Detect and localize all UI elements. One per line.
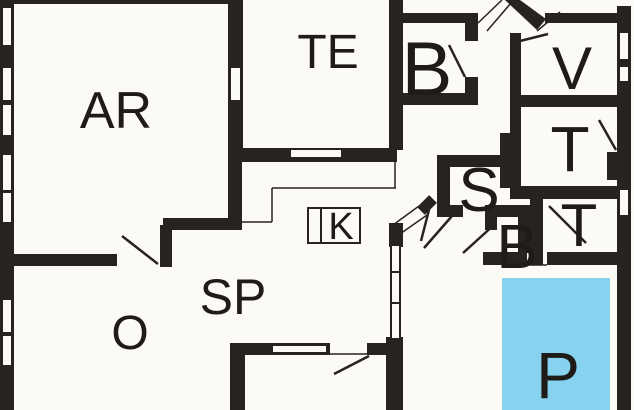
windows — [272, 245, 400, 353]
room-label-t-upper: T — [550, 113, 589, 185]
room-label-sp: SP — [200, 269, 267, 325]
door-swing-t-upper — [599, 120, 616, 150]
floor-plan: AR TE B V T S B T K SP O P — [0, 0, 634, 410]
door-swing-s — [424, 216, 452, 248]
room-label-b-top: B — [402, 27, 453, 112]
window-sp-hall — [391, 245, 400, 339]
floor-plan-canvas: AR TE B V T S B T K SP O P — [0, 0, 634, 410]
door-swing-o — [122, 236, 158, 264]
room-label-p: P — [536, 338, 580, 410]
room-label-ar: AR — [80, 82, 152, 140]
window-bottom-room — [272, 345, 327, 353]
door-swing-b-small — [463, 224, 495, 253]
room-label-o: O — [111, 307, 148, 360]
room-label-b-small: B — [496, 213, 537, 282]
door-swing-bottom-room — [334, 356, 369, 374]
room-label-k: K — [328, 206, 353, 248]
room-label-s: S — [458, 156, 499, 225]
room-label-t-lower: T — [561, 192, 598, 259]
room-label-te: TE — [297, 26, 358, 79]
room-label-v: V — [552, 35, 592, 102]
